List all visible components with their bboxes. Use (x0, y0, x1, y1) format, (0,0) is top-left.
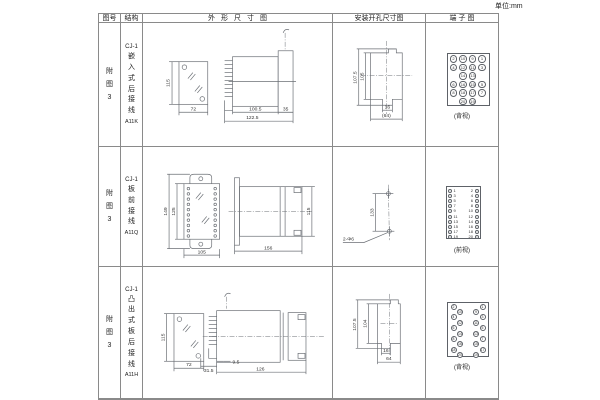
terminal-circle (448, 189, 452, 193)
dim-total-depth: 126 (256, 367, 265, 373)
terminal-circle: 2 (451, 304, 457, 310)
header-terminal-diagram: 端子图 (426, 14, 498, 23)
terminal-circle (448, 215, 452, 219)
datasheet-page: 单位:mm 图号 结构 外形尺寸图 安装开孔尺寸图 端子图 附图3 CJ-1 嵌… (0, 0, 600, 400)
terminal-number: 20 (465, 235, 473, 239)
terminal-circle (475, 189, 479, 193)
terminal-circle: 18 (459, 89, 467, 97)
row1-code: A11K (125, 119, 138, 125)
dim-cutout-inner: 105 (360, 72, 366, 80)
terminal-circle: 10 (457, 309, 463, 315)
terminal-circle: 5 (480, 325, 486, 331)
row3-code: A11H (125, 372, 138, 378)
dim-plate-width: 105 (198, 250, 206, 256)
header-structure: 结构 (121, 14, 143, 23)
terminal-circle: 20 (459, 98, 467, 106)
dim-slot-width: 16 (383, 348, 389, 354)
header-outline-dims: 外形尺寸图 (143, 14, 333, 23)
terminal-circle: 3 (480, 314, 486, 320)
terminal-circle: 17 (480, 347, 486, 353)
terminal-view-label: (前视) (426, 245, 498, 254)
terminal-circle: 6 (451, 325, 457, 331)
terminal-circle (448, 220, 452, 224)
row2-desc: 板前接线 (128, 185, 135, 228)
row1-install-drawing: 107.5 105 16 (64) (333, 23, 426, 147)
row3-install-drawing: 107.5 104 16 64 (333, 267, 426, 399)
terminal-number: 10 (465, 209, 473, 213)
terminal-circle: 9 (469, 55, 477, 63)
dim-slot-width: 16 (385, 105, 391, 111)
dim-front-width: 72 (191, 106, 197, 112)
terminal-circle: 1 (480, 304, 486, 310)
dim-cutout-outer: 107.5 (352, 318, 358, 331)
dim-step-depth: 9.5 (233, 359, 240, 365)
terminal-circle: 1 (478, 55, 486, 63)
row1-fig-no: 附图3 (99, 23, 121, 147)
terminal-number: 19 (454, 235, 462, 239)
terminal-circle: 20 (457, 352, 463, 358)
terminal-circle: 14 (457, 331, 463, 337)
terminal-circle: 11 (473, 320, 479, 326)
row3-desc: 凸出式板后接线 (128, 295, 135, 371)
terminal-circle: 3 (478, 64, 486, 72)
dim-plate-outer-height: 149 (163, 207, 169, 215)
terminal-number: 1 (454, 189, 462, 193)
dim-front-height: 115 (161, 333, 167, 341)
terminal-circle: 12 (459, 64, 467, 72)
dim-comb-depth: 31.5 (204, 368, 214, 374)
terminal-number: 11 (454, 215, 462, 219)
row1-desc: 嵌入式后接线 (128, 52, 135, 117)
row2-structure: CJ-1 板前接线 A11Q (121, 147, 143, 267)
dim-hole-spacing: 133 (370, 208, 376, 216)
row2-fig-no: 附图3 (99, 147, 121, 267)
terminal-circle: 7 (478, 89, 486, 97)
row1-outline-drawing: 115 72 100.5 35 (143, 23, 333, 147)
terminal-circle: 12 (457, 320, 463, 326)
dim-body-depth: 100.5 (249, 106, 262, 112)
terminal-circle (475, 199, 479, 203)
terminal-circle (448, 199, 452, 203)
dim-total-depth: 122.5 (246, 115, 259, 121)
terminal-circle (475, 225, 479, 229)
terminal-circle (475, 194, 479, 198)
install-drawing-a11q: 133 2-Φ6 (333, 147, 425, 266)
row3-fig-no: 附图3 (99, 267, 121, 399)
terminal-circle: 2 (450, 55, 458, 63)
terminal-circle: 8 (451, 336, 457, 342)
header-fig-no: 图号 (99, 14, 121, 23)
row2-outline-drawing: 149 125 105 156 115 (143, 147, 333, 267)
terminal-circle: 17 (469, 89, 477, 97)
install-drawing-a11h: 107.5 104 16 64 (333, 267, 425, 398)
row2-model: CJ-1 (125, 177, 138, 183)
header-install-holes: 安装开孔尺寸图 (333, 14, 426, 23)
terminal-circle: 13 (469, 72, 477, 80)
terminal-circle: 14 (459, 72, 467, 80)
terminal-circle (475, 220, 479, 224)
row1-structure: CJ-1 嵌入式后接线 A11K (121, 23, 143, 147)
terminal-circle: 9 (473, 309, 479, 315)
terminal-circle: 10 (459, 55, 467, 63)
terminal-number: 2 (465, 189, 473, 193)
terminal-circle (448, 225, 452, 229)
row3-structure: CJ-1 凸出式板后接线 A11H (121, 267, 143, 399)
row2-terminal-diagram: (前视) 1234567891011121314151617181920 (426, 147, 498, 267)
row1-terminal-diagram: (背视) 2109141211314136161558181772019 (426, 23, 498, 147)
dim-side-depth: 156 (264, 246, 272, 252)
hole-spec-note: 2-Φ6 (343, 237, 354, 243)
dim-plate-inner-height: 125 (171, 207, 177, 215)
dim-side-height: 115 (306, 207, 312, 215)
dim-cutout-width: 64 (386, 356, 392, 362)
outline-drawing-a11h: 115 72 9.5 31.5 (143, 267, 332, 398)
outline-drawing-a11k: 115 72 100.5 35 (143, 23, 332, 146)
terminal-circle: 5 (478, 81, 486, 89)
row1-model: CJ-1 (125, 44, 138, 50)
terminal-circle: 19 (473, 352, 479, 358)
terminal-number: 9 (454, 209, 462, 213)
unit-label: 单位:mm (495, 1, 523, 11)
terminal-number: 12 (465, 215, 473, 219)
row3-terminal-diagram: (背视) 2110943121165141387161518172019 (426, 267, 498, 399)
dim-flange-depth: 35 (283, 106, 289, 112)
terminal-circle: 8 (450, 89, 458, 97)
dim-cutout-outer: 107.5 (353, 71, 359, 84)
row2-install-drawing: 133 2-Φ6 (333, 147, 426, 267)
terminal-circle (448, 194, 452, 198)
terminal-circle: 4 (451, 314, 457, 320)
row3-model: CJ-1 (125, 287, 138, 293)
terminal-circle: 13 (473, 331, 479, 337)
row3-outline-drawing: 115 72 9.5 31.5 (143, 267, 333, 399)
terminal-circle: 18 (451, 347, 457, 353)
dim-cutout-width: (64) (382, 113, 391, 119)
install-drawing-a11k: 107.5 105 16 (64) (333, 23, 425, 146)
dim-front-height: 115 (166, 79, 172, 87)
terminal-view-label: (背视) (426, 362, 498, 371)
outline-drawing-a11q: 149 125 105 156 115 (143, 147, 332, 266)
dim-front-width: 72 (186, 362, 192, 368)
terminal-view-label: (背视) (426, 111, 498, 120)
terminal-circle (475, 215, 479, 219)
dimension-table: 图号 结构 外形尺寸图 安装开孔尺寸图 端子图 附图3 CJ-1 嵌入式后接线 … (98, 13, 499, 400)
dim-cutout-inner: 104 (363, 319, 369, 327)
terminal-circle: 16 (459, 81, 467, 89)
terminal-circle: 7 (480, 336, 486, 342)
row2-code: A11Q (125, 230, 139, 236)
